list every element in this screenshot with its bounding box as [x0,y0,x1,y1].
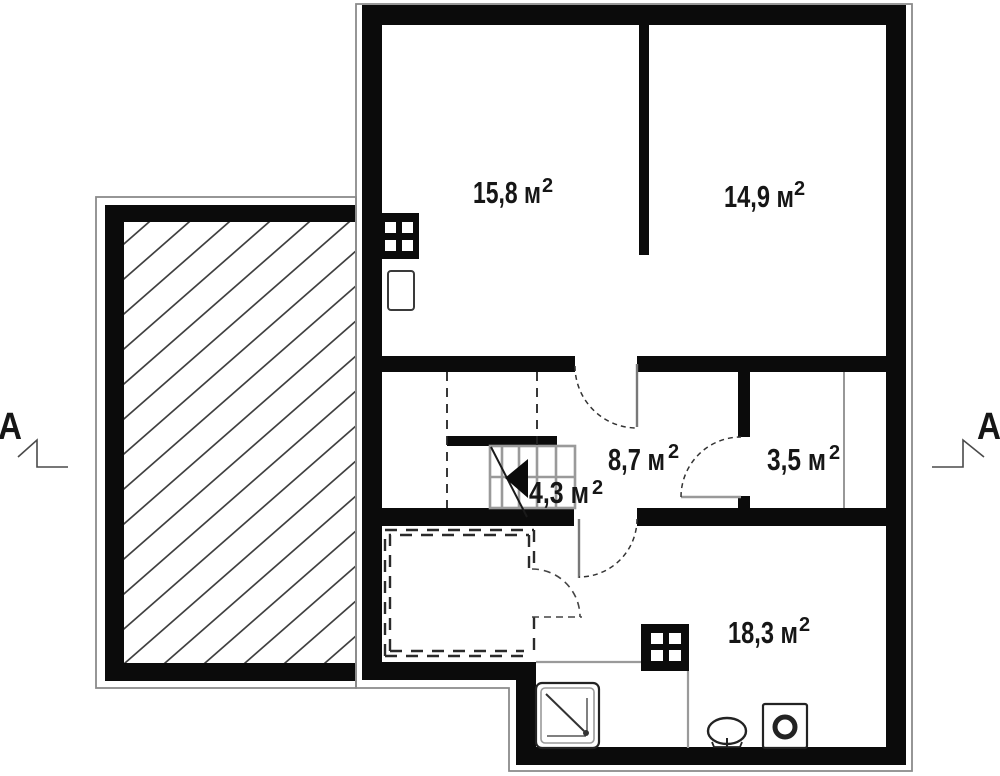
svg-text:18,3 м: 18,3 м [728,615,798,650]
svg-text:3,5 м: 3,5 м [767,442,826,477]
svg-text:A: A [0,406,22,448]
svg-text:8,7 м: 8,7 м [608,442,665,477]
svg-text:2: 2 [542,175,553,197]
svg-text:2: 2 [829,442,840,464]
svg-text:A: A [977,406,1000,448]
svg-text:2: 2 [799,614,810,636]
svg-text:14,9 м: 14,9 м [724,179,794,214]
svg-text:2: 2 [794,178,805,200]
svg-text:4,3 м: 4,3 м [529,475,589,510]
svg-text:15,8 м: 15,8 м [473,175,541,210]
svg-text:2: 2 [592,477,603,499]
svg-text:2: 2 [668,441,679,463]
